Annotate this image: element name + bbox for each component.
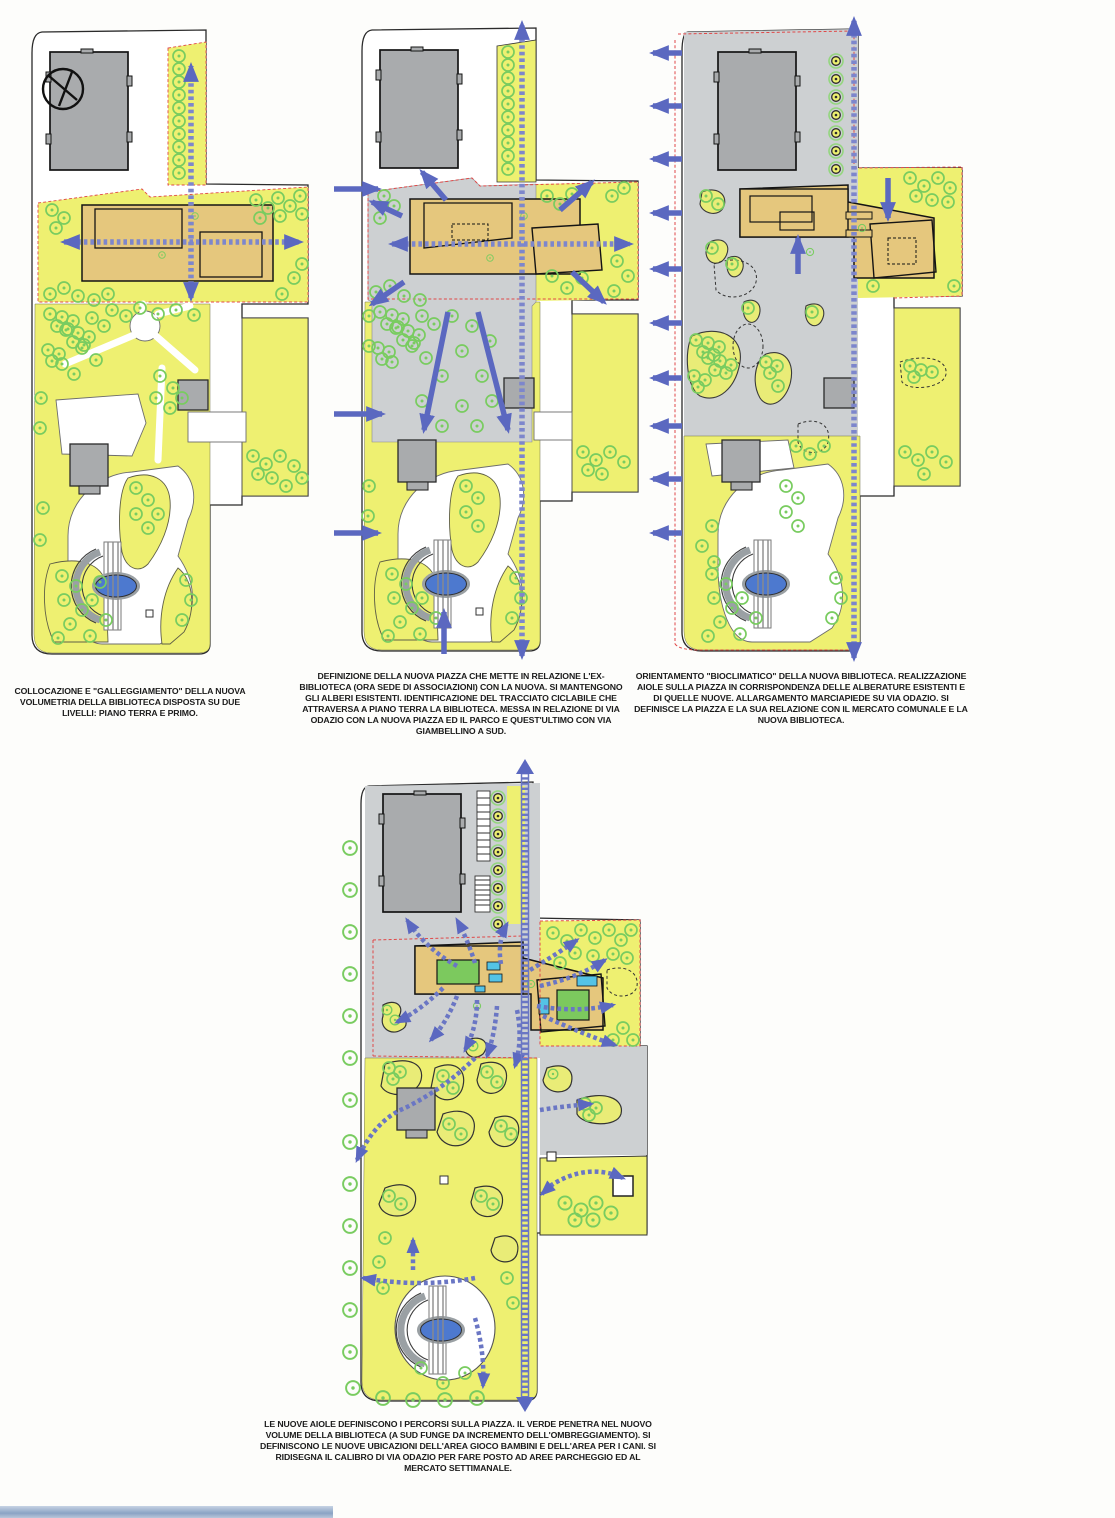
market-building: [376, 47, 462, 168]
caption-panel-1: COLLOCAZIONE E "GALLEGGIAMENTO" DELLA NU…: [14, 686, 246, 719]
park-building: [70, 444, 108, 494]
scanned-sheet: { "document": { "kind": "urban design co…: [0, 0, 1115, 1518]
caption-panel-4: LE NUOVE AIOLE DEFINISCONO I PERCORSI SU…: [258, 1419, 658, 1474]
market-building: [379, 791, 465, 912]
park-building-2: [504, 378, 534, 408]
park-building: [398, 440, 436, 490]
small-kiosk: [547, 1152, 556, 1161]
market-kiosk: [613, 1176, 633, 1196]
panel-2-map: [332, 6, 644, 668]
market-building: [714, 49, 800, 170]
kiosk: [440, 1176, 448, 1184]
kiosk: [146, 610, 153, 617]
park-building: [397, 1088, 435, 1138]
scan-edge-artifact: [0, 1506, 333, 1518]
park-building: [722, 440, 760, 490]
park-building-2: [178, 380, 208, 410]
library-building: [410, 199, 602, 274]
caption-panel-3: ORIENTAMENTO "BIOCLIMATICO" DELLA NUOVA …: [634, 671, 968, 726]
park-east-extension: [894, 308, 960, 486]
panel-1-map: [10, 8, 310, 668]
panel-3-map: [648, 6, 978, 668]
flow-arrows-west: [653, 53, 682, 533]
caption-panel-2: DEFINIZIONE DELLA NUOVA PIAZZA CHE METTE…: [292, 671, 630, 737]
kiosk: [476, 608, 483, 615]
parking-strip: [475, 791, 490, 912]
panel-4-map: [325, 758, 660, 1413]
park-building-2: [824, 378, 854, 408]
